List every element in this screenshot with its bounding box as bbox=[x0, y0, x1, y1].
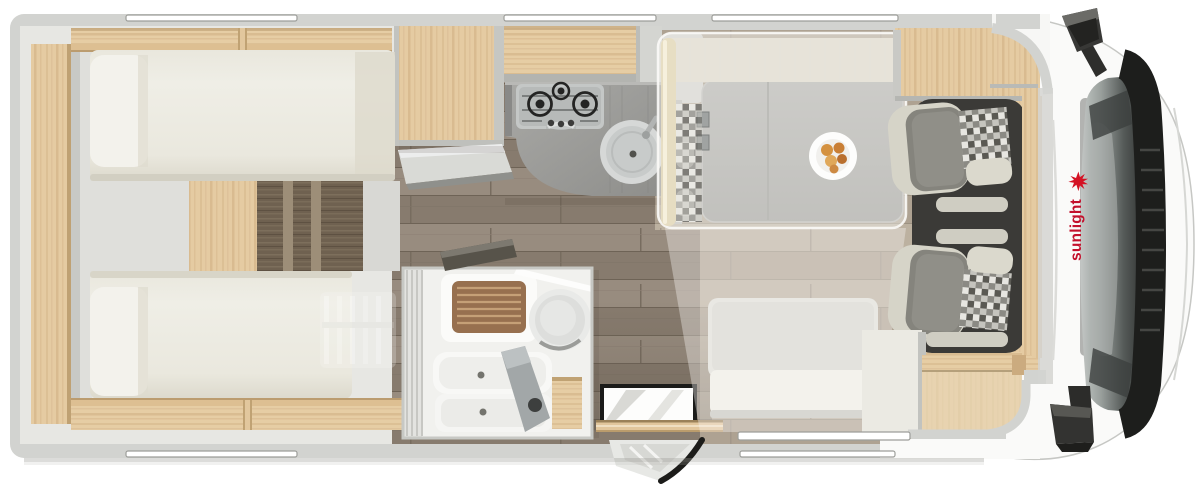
svg-text:sunlight: sunlight bbox=[1068, 199, 1085, 261]
